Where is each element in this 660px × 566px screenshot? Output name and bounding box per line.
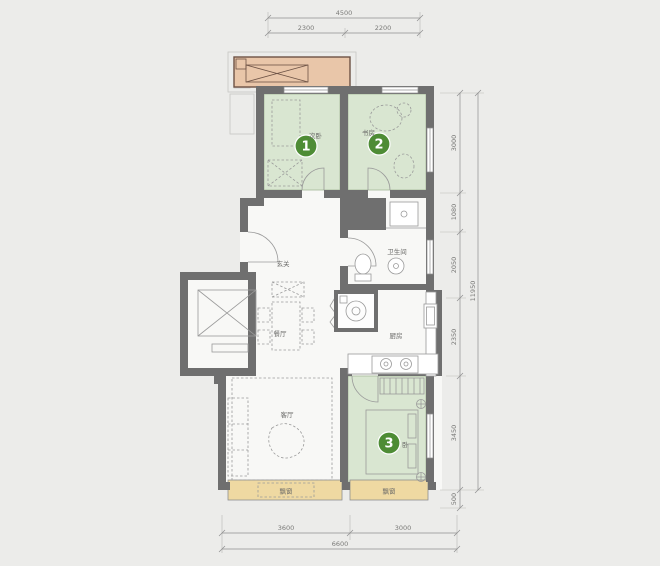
- entry-label: 玄关: [277, 259, 291, 268]
- dimension-bottom: 3600 3000 6600: [219, 515, 460, 553]
- toilet: [355, 254, 371, 274]
- bedroom3-window: [427, 414, 433, 458]
- kitchen-sink: [424, 304, 437, 328]
- bedroom2-side-window: [427, 128, 433, 172]
- dim-right-seg2: 1080: [450, 204, 458, 221]
- dim-bottom-seg1: 3600: [278, 524, 295, 532]
- dining-label: 餐厅: [274, 329, 288, 338]
- bathroom-sink: [388, 258, 404, 274]
- living-label: 客厅: [281, 410, 295, 419]
- bay-left-label: 飘窗: [280, 487, 293, 496]
- dim-top-seg2: 2200: [375, 24, 392, 32]
- dim-right-seg6: 500: [450, 493, 458, 505]
- bathroom-window: [427, 240, 433, 274]
- bay-right-label: 飘窗: [383, 487, 396, 496]
- bay-windows: [228, 480, 428, 500]
- bedroom1-label: 次卧: [309, 131, 323, 140]
- bedroom1-number: 1: [301, 140, 310, 155]
- bedroom3-label: 卧: [402, 441, 409, 449]
- dim-bottom-total: 6600: [332, 540, 349, 548]
- dimension-top: 4500 2300 2200: [265, 9, 423, 38]
- dimension-right: 3000 1080 2050 2350 3450 500 11950: [440, 90, 484, 511]
- dim-bottom-seg2: 3000: [395, 524, 412, 532]
- bedroom1-window: [284, 87, 328, 93]
- ac-platform: [234, 57, 350, 87]
- bedroom3-number: 3: [384, 437, 393, 452]
- dim-right-seg4: 2350: [450, 329, 458, 346]
- dim-right-seg1: 3000: [450, 135, 458, 152]
- floor-plan-page: 4500 2300 2200 3000 1080 2050 2350 3450 …: [0, 0, 660, 566]
- kitchen-label: 厨房: [390, 331, 403, 340]
- bedroom2-window: [382, 87, 418, 93]
- dim-right-total: 11950: [469, 281, 477, 302]
- dim-right-seg5: 3450: [450, 425, 458, 442]
- dim-right-seg3: 2050: [450, 257, 458, 274]
- bedroom2-number: 2: [374, 138, 383, 153]
- bathroom-label: 卫生间: [387, 247, 407, 256]
- dim-top-total: 4500: [336, 9, 353, 17]
- bedroom2-label: 书房: [362, 128, 375, 137]
- washer-closet: [336, 292, 376, 330]
- floor-plan-drawing: 4500 2300 2200 3000 1080 2050 2350 3450 …: [0, 0, 660, 566]
- water-heater: [390, 202, 418, 226]
- dim-top-seg1: 2300: [298, 24, 315, 32]
